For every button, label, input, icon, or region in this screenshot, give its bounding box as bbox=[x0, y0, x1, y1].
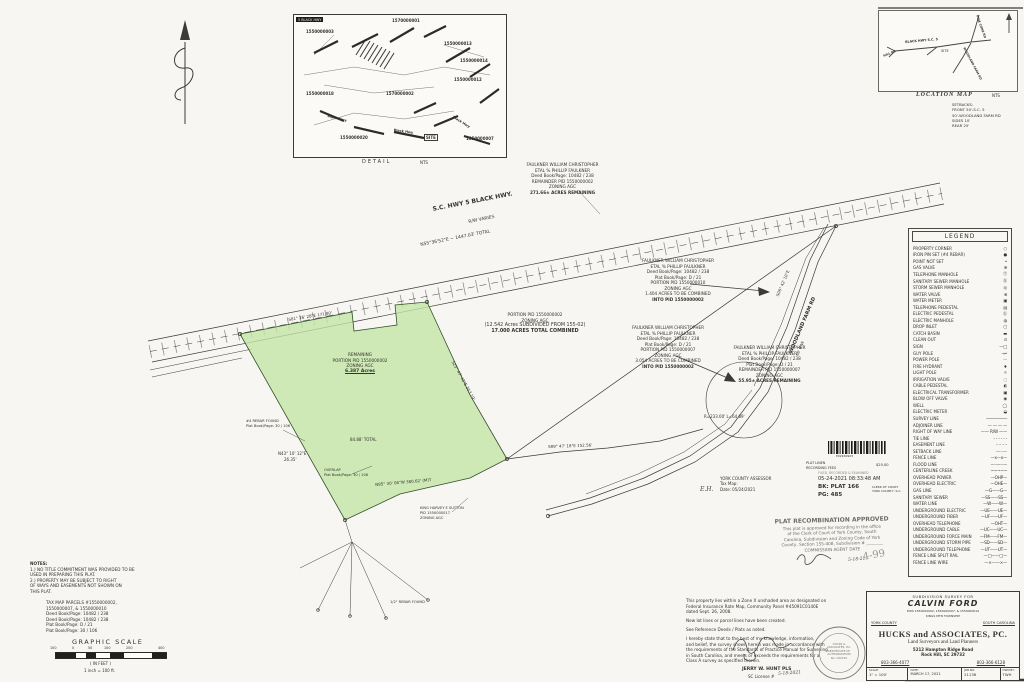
legend-item-symbol: ▬ bbox=[1003, 331, 1007, 336]
detail-scale-note: NTS bbox=[420, 160, 428, 165]
legend-item-label: SETBACK LINE bbox=[913, 449, 942, 454]
legend-item-symbol: ⊗ bbox=[1004, 292, 1007, 297]
legend-item-symbol: ◎ bbox=[1004, 285, 1007, 290]
legend-item-symbol: —SD——SD— bbox=[980, 540, 1007, 545]
legend-item-label: FENCE LINE bbox=[913, 455, 936, 460]
date-value: MARCH 17, 2021 bbox=[910, 672, 959, 677]
legend-item-label: WATER VALVE bbox=[913, 292, 940, 297]
legend-row: FENCE LINE WIRE —×——×— bbox=[913, 559, 1007, 566]
north-arrow-icon bbox=[165, 8, 209, 130]
legend-item-symbol: —FM——FM— bbox=[980, 534, 1007, 539]
parcel-id-label: 1570000001 bbox=[392, 18, 420, 23]
legend-item-label: GUY POLE bbox=[913, 351, 933, 356]
legend-item-symbol: ◐ bbox=[1004, 383, 1007, 388]
legend-item-label: UNDERGROUND FIBER bbox=[913, 514, 958, 519]
legend-title: LEGEND bbox=[912, 231, 1008, 242]
curve-data-label: R=233.00' L=64.89' bbox=[704, 414, 745, 419]
legend-item-label: GAS LINE bbox=[913, 488, 932, 493]
dwn-value: TWH bbox=[1003, 672, 1017, 677]
scale-value: 1" = 100' bbox=[869, 672, 905, 677]
legend-item-symbol: ♦ bbox=[1003, 364, 1007, 369]
barcode-number: P02160923 bbox=[836, 455, 853, 459]
legend-item-label: EASEMENT LINE bbox=[913, 442, 945, 447]
legend-item-symbol: ○ bbox=[1004, 246, 1007, 251]
legend-item-label: PROPERTY CORNER bbox=[913, 246, 952, 251]
scale-ratio: 1 inch = 100 ft. bbox=[84, 668, 115, 673]
legend-item-label: SANITARY SEWER bbox=[913, 495, 948, 500]
title-block-state: SOUTH CAROLINA bbox=[983, 621, 1015, 626]
legend-item-label: CLEAN OUT bbox=[913, 337, 936, 342]
legend-item-symbol: —— R/W —— bbox=[981, 429, 1007, 434]
legend-item-symbol: —G——G— bbox=[985, 488, 1007, 493]
legend-item-label: UNDERGROUND FORCE MAIN bbox=[913, 534, 972, 539]
bearing-label: 26.35' bbox=[284, 457, 297, 462]
legend-item-label: ELECTRIC MANHOLE bbox=[913, 318, 954, 323]
scale-tick: 50 bbox=[88, 646, 92, 651]
owner-block-remainder-007: FAULKNER WILLIAM CHRISTOPHERETAL % PHILL… bbox=[712, 345, 827, 384]
scale-tick: 400 bbox=[158, 646, 164, 651]
legend-item-symbol: ───────── bbox=[986, 416, 1007, 421]
parcel-id-label: 1570000002 bbox=[386, 91, 414, 96]
legend-item-label: UNDERGROUND STORM PIPE bbox=[913, 540, 971, 545]
detail-caption: DETAIL bbox=[362, 159, 391, 166]
bearing-label: 84.88' TOTAL bbox=[350, 437, 377, 442]
legend-item-label: WATER LINE bbox=[913, 501, 937, 506]
legend-item-symbol: – – – – bbox=[996, 442, 1007, 447]
title-block-county: YORK COUNTY bbox=[871, 621, 897, 626]
legend-item-label: WELL bbox=[913, 403, 924, 408]
detail-inset-map: 5 BLACK HWY 1570000001 1550000003 155000… bbox=[293, 14, 507, 158]
location-map: BLACK HWY S.C. 5 PINE CONE RD WOODLAND F… bbox=[878, 10, 1018, 92]
king-owner-block: KING HARVEY E SUTTONPID 1550000017ZONING… bbox=[420, 506, 492, 521]
surveyor-license: SC License # bbox=[748, 674, 774, 679]
legend-item-symbol: ● bbox=[1004, 252, 1007, 257]
scale-units: ( IN FEET ) bbox=[90, 661, 111, 666]
scale-cell: SCALE: 1" = 100' bbox=[867, 668, 907, 681]
legend-item-symbol: ◌ bbox=[1004, 377, 1007, 382]
seal-text: HUCKS &ASSOCIATES, P.C.CERTIFICATE OFAUT… bbox=[816, 643, 862, 660]
legend-item-symbol: ☼ bbox=[1003, 370, 1007, 375]
assessor-line: Date: 05/24/2021 bbox=[720, 487, 800, 492]
legend-list: PROPERTY CORNER ○ IRON PIN SET (#4 REBAR… bbox=[909, 244, 1011, 566]
legend-item-label: FIRE HYDRANT bbox=[913, 364, 942, 369]
legend-item-label: ADJOINER LINE bbox=[913, 423, 943, 428]
firm-phone2: 803-366-6128 bbox=[977, 660, 1005, 665]
owner-block-remainder-002: FAULKNER WILLIAM CHRISTOPHERETAL % PHILL… bbox=[505, 162, 620, 195]
legend-item-label: WATER METER bbox=[913, 298, 942, 303]
owner-block-line: INTO PID 1550000002 bbox=[618, 297, 738, 303]
title-block-township: KINGS MTN TOWNSHIP bbox=[867, 615, 1019, 619]
legend-item-symbol: —□——□— bbox=[984, 553, 1007, 558]
bearing-label: N43° 10' 12"E bbox=[278, 451, 306, 456]
combined-parcel-line: 17.000 ACRES TOTAL COMBINED bbox=[450, 329, 620, 335]
parcel-id-label: 1550000007 bbox=[466, 136, 494, 141]
legend-item-symbol: ⊙ bbox=[1004, 337, 1007, 342]
parcel-id-label: 1550000018 bbox=[306, 91, 334, 96]
owner-block-line: 55.95± ACRES REMAINING bbox=[712, 378, 827, 384]
detail-chip-label: 5 BLACK HWY bbox=[296, 17, 323, 22]
legend-item-symbol: —OHT— bbox=[991, 521, 1007, 526]
legend-item-label: SURVEY LINE bbox=[913, 416, 939, 421]
detail-site-label: SITE bbox=[424, 134, 438, 141]
firm-address2: Rock Hill, SC 29732 bbox=[867, 652, 1019, 657]
legend-item-symbol: —OHE— bbox=[991, 481, 1007, 486]
legend-item-label: UNDERGROUND ELECTRIC bbox=[913, 508, 966, 513]
parcel-id-label: 1550000012 bbox=[454, 77, 482, 82]
parcel-id-label: 1550000014 bbox=[460, 58, 488, 63]
legend-item-label: SIGN bbox=[913, 344, 923, 349]
legend-item-label: ELECTRICAL TRANSFORMER bbox=[913, 390, 969, 395]
location-site-label: SITE bbox=[941, 49, 949, 54]
location-map-caption: LOCATION MAP bbox=[916, 92, 973, 100]
assessor-block: YORK COUNTY ASSESSORTax Map:Date: 05/24/… bbox=[720, 476, 800, 492]
legend-item-label: OVERHEAD ELECTRIC bbox=[913, 481, 956, 486]
legend-item-label: RIGHT OF WAY LINE bbox=[913, 429, 952, 434]
parcel-id-label: 1550000003 bbox=[306, 29, 334, 34]
seal-text-line: No. C02232 bbox=[816, 657, 862, 660]
legend-item-symbol: —SS——SS— bbox=[981, 495, 1007, 500]
legend-item-symbol: Ⓢ bbox=[1003, 278, 1007, 284]
legend-item-symbol: -◦ bbox=[1003, 357, 1007, 362]
legend-item-symbol: —UF——UF— bbox=[981, 514, 1007, 519]
owner-block-line: 271.66± ACRES REMAINING bbox=[505, 190, 620, 196]
legend-item-label: TELEPHONE MANHOLE bbox=[913, 272, 958, 277]
legend-item-symbol: - - - - - - bbox=[993, 436, 1007, 441]
setbacks-block: SETBACKS:FRONT 50'-S.C. 550'-WOODLAND FA… bbox=[952, 102, 1016, 129]
legend-item-symbol: ◉ bbox=[1004, 396, 1007, 401]
recording-book: BK: PLAT 166 bbox=[818, 484, 859, 491]
legend-item-symbol: Ⓔ bbox=[1003, 311, 1007, 317]
recording-faint-line: FILED, RECORDED & EXAMINED bbox=[818, 471, 869, 475]
legend-item-symbol: —□ bbox=[999, 344, 1007, 349]
survey-plat-page: 5 BLACK HWY 1570000001 1550000003 155000… bbox=[0, 0, 1024, 682]
legend-item-label: OVERHEAD TELEPHONE bbox=[913, 521, 961, 526]
legend-item-label: TIE LINE bbox=[913, 436, 929, 441]
legend-item-symbol: —UT——UT— bbox=[981, 547, 1007, 552]
combined-parcel-label: PORTION PID 1550000002 ZONING AGC (12.54… bbox=[450, 312, 620, 336]
notes-block: NOTES: 1.) NO TITLE COMMITMENT WAS PROVI… bbox=[30, 561, 170, 594]
legend-item-symbol: ▢ bbox=[1003, 324, 1007, 329]
recording-datetime: 05-24-2021 08:33:48 AM bbox=[818, 476, 880, 483]
firm-phone1: 803-366-4077 bbox=[881, 660, 909, 665]
legend-item-label: LIGHT POLE bbox=[913, 370, 937, 375]
legend-item-symbol: —×——×— bbox=[984, 560, 1007, 565]
dwn-cell: DWN BY: TWH bbox=[1000, 668, 1019, 681]
legend-item-label: ELECTRIC METER bbox=[913, 409, 947, 414]
legend-item-symbol: ◍ bbox=[1004, 318, 1007, 323]
legend-item-label: FENCE LINE SPLIT RAIL bbox=[913, 553, 958, 558]
legend-item-symbol: • bbox=[1005, 259, 1007, 264]
legend-item-symbol: —UE——UE— bbox=[980, 508, 1007, 513]
legend-item-symbol: ▣ bbox=[1003, 390, 1007, 395]
legend-item-label: OVERHEAD POWER bbox=[913, 475, 952, 480]
green-parcel-acres: 6.387 Acres bbox=[300, 369, 420, 375]
legend-item-label: CABLE PEDESTAL bbox=[913, 383, 947, 388]
owner-block-line: INTO PID 1550000002 bbox=[608, 364, 728, 370]
legend-item-label: UNDERGROUND TELEPHONE bbox=[913, 547, 970, 552]
legend-item-label: CENTERLINE CREEK bbox=[913, 468, 953, 473]
legend-row: UNDERGROUND FORCE MAIN —FM——FM— bbox=[913, 533, 1007, 540]
parcel-id-label: 1550000013 bbox=[444, 41, 472, 46]
legend-item-symbol: ·········· bbox=[996, 449, 1007, 454]
legend-row: UNDERGROUND ELECTRIC —UE——UE— bbox=[913, 507, 1007, 514]
legend-item-label: IRRIGATION VALVE bbox=[913, 377, 950, 382]
legend-item-symbol: ▣ bbox=[1003, 298, 1007, 303]
legend-item-symbol: —W——W— bbox=[983, 501, 1007, 506]
barcode-icon bbox=[828, 441, 886, 454]
recording-page: PG: 485 bbox=[818, 492, 842, 499]
legend-item-label: ELECTRIC PEDESTAL bbox=[913, 311, 954, 316]
parcel-id-label: 1550000020 bbox=[340, 135, 368, 140]
legend-item-symbol: ⊕ bbox=[1004, 265, 1007, 270]
setbacks-line: REAR 25' bbox=[952, 123, 1016, 128]
tax-parcels-line: Plat Book/Page: 30 / 106 bbox=[46, 628, 156, 634]
legend-item-symbol: —OHP— bbox=[991, 475, 1007, 480]
legend-row: UNDERGROUND TELEPHONE —UT——UT— bbox=[913, 546, 1007, 553]
scale-tick: 200 bbox=[126, 646, 132, 651]
legend-item-label: IRON PIN SET (#4 REBAR) bbox=[913, 252, 965, 257]
notes-line: THIS PLAT. bbox=[30, 589, 170, 595]
recording-fee-amount: $25.00 bbox=[876, 463, 889, 468]
job-value: 21136 bbox=[964, 672, 997, 677]
legend-item-symbol: — — — — bbox=[988, 423, 1007, 428]
legend-item-label: TELEPHONE PEDESTAL bbox=[913, 305, 958, 310]
legend-item-symbol: —··—··— bbox=[991, 462, 1008, 467]
legend-item-label: SANITARY SEWER MANHOLE bbox=[913, 279, 969, 284]
legend-item-label: GAS VALVE bbox=[913, 265, 935, 270]
date-cell: DATE: MARCH 17, 2021 bbox=[907, 668, 961, 681]
note-line: Plat Book/Page: 30 / 106 bbox=[324, 473, 386, 478]
firm-tagline: Land Surveyors and Land Planners bbox=[867, 640, 1019, 647]
recording-fee-label: PLAT LINEN bbox=[806, 461, 825, 466]
legend-item-symbol: ▤ bbox=[1003, 305, 1007, 310]
note-line: ZONING AGC bbox=[420, 516, 492, 521]
legend-item-label: FLOOD LINE bbox=[913, 462, 937, 467]
legend-item-label: POWER POLE bbox=[913, 357, 939, 362]
legend-item-symbol: ~~~~~ bbox=[990, 468, 1007, 473]
recording-fee-label2: RECORDING FEES bbox=[806, 466, 836, 471]
overlap-note-block: OVERLAPPlat Book/Page: 30 / 106 bbox=[324, 468, 386, 478]
legend-row: UNDERGROUND STORM PIPE —SD——SD— bbox=[913, 540, 1007, 547]
legend: LEGEND PROPERTY CORNER ○ IRON PIN SET (#… bbox=[908, 228, 1012, 577]
legend-item-label: POINT NOT SET bbox=[913, 259, 944, 264]
legend-item-label: BLOW OFF VALVE bbox=[913, 396, 948, 401]
job-cell: JOB NO: 21136 bbox=[961, 668, 999, 681]
legend-item-symbol: ◒ bbox=[1004, 409, 1007, 414]
tax-parcels-block: TAX MAP PARCELS #1550000002,1550000007, … bbox=[46, 600, 156, 633]
legend-item-symbol: ◯ bbox=[1003, 403, 1008, 408]
firm-name: HUCKS and ASSOCIATES, PC. bbox=[867, 629, 1019, 639]
legend-item-label: FENCE LINE WIRE bbox=[913, 560, 948, 565]
owner-block-portion-007: FAULKNER WILLIAM CHRISTOPHERETAL % PHILL… bbox=[608, 325, 728, 369]
title-block-grid: SCALE: 1" = 100' DATE: MARCH 17, 2021 JO… bbox=[867, 667, 1019, 680]
scale-tick: 100 bbox=[104, 646, 110, 651]
legend-item-symbol: —x—x— bbox=[990, 455, 1007, 460]
legend-item-symbol: →• bbox=[1001, 351, 1007, 356]
notes-body: 1.) NO TITLE COMMITMENT WAS PROVIDED TO … bbox=[30, 567, 170, 595]
monument-label: 1/2" REBAR FOUND bbox=[390, 600, 425, 605]
rebar-note-block: #4 REBAR FOUNDPlat Book/Page: 30 / 106 bbox=[246, 419, 308, 429]
legend-item-symbol: —UC——UC— bbox=[980, 527, 1007, 532]
legend-item-label: CATCH BASIN bbox=[913, 331, 940, 336]
note-line: Plat Book/Page: 30 / 106 bbox=[246, 424, 308, 429]
graphic-scale-bar bbox=[55, 652, 167, 659]
scale-tick: 0 bbox=[72, 646, 74, 651]
green-parcel-label: REMAINING PORTION PID 1550000002 ZONING … bbox=[300, 352, 420, 374]
location-map-scale-note: NTS bbox=[992, 93, 1000, 98]
examiner-initials: E.H. bbox=[700, 486, 713, 494]
client-name: CALVIN FORD bbox=[867, 599, 1019, 609]
owner-block-portion-010: FAULKNER WILLIAM CHRISTOPHERETAL % PHILL… bbox=[618, 258, 738, 302]
clerk-line2: YORK COUNTY, S.C. bbox=[872, 490, 901, 494]
scale-tick: 100 bbox=[50, 646, 56, 651]
legend-item-symbol: Ⓣ bbox=[1003, 271, 1007, 277]
legend-item-label: STORM SEWER MANHOLE bbox=[913, 285, 964, 290]
title-block: SUBDIVISION SURVEY FOR CALVIN FORD PIDS … bbox=[866, 591, 1020, 681]
legend-row: OVERHEAD TELEPHONE —OHT— bbox=[913, 520, 1007, 527]
legend-item-label: UNDERGROUND CABLE bbox=[913, 527, 960, 532]
legend-item-label: DROP INLET bbox=[913, 324, 937, 329]
